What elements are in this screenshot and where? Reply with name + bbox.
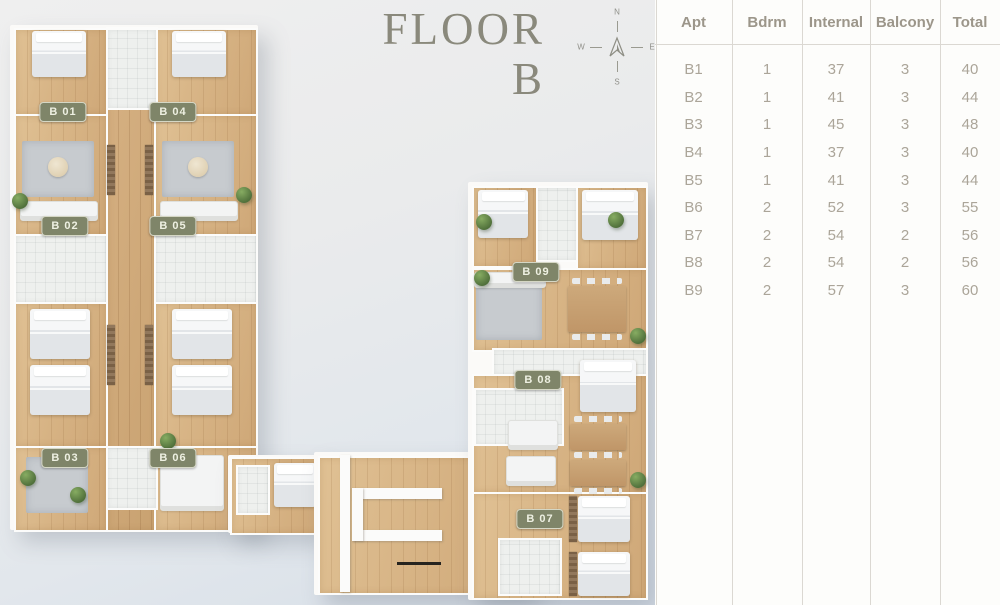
cell-balcony: 2 bbox=[870, 227, 940, 244]
unit-label: B 03 bbox=[41, 448, 88, 468]
unit-label: B 05 bbox=[149, 216, 196, 236]
unit-label: B 06 bbox=[149, 448, 196, 468]
title-floor: FLOOR bbox=[382, 4, 545, 54]
bathroom bbox=[106, 28, 158, 110]
cell-internal: 57 bbox=[802, 282, 870, 299]
cell-balcony: 3 bbox=[870, 282, 940, 299]
cell-apt: B1 bbox=[655, 61, 732, 78]
table-row: B4 1 37 3 40 bbox=[655, 139, 1000, 167]
cell-apt: B9 bbox=[655, 282, 732, 299]
cell-bdrm: 1 bbox=[732, 89, 802, 106]
header-internal: Internal bbox=[802, 14, 870, 31]
table-row: B9 2 57 3 60 bbox=[655, 277, 1000, 305]
plant bbox=[160, 433, 176, 449]
cell-total: 55 bbox=[940, 199, 1000, 216]
unit-label: B 07 bbox=[516, 509, 563, 529]
cell-bdrm: 1 bbox=[732, 172, 802, 189]
kitchen bbox=[498, 538, 562, 596]
bathroom bbox=[236, 465, 270, 515]
cell-bdrm: 2 bbox=[732, 227, 802, 244]
compass-arrow-icon bbox=[607, 36, 627, 58]
unit-label: B 08 bbox=[514, 370, 561, 390]
cell-total: 56 bbox=[940, 227, 1000, 244]
cell-internal: 41 bbox=[802, 89, 870, 106]
bed bbox=[578, 552, 630, 596]
compass-n: N bbox=[614, 8, 620, 17]
unit-label: B 09 bbox=[512, 262, 559, 282]
table-row: B5 1 41 3 44 bbox=[655, 166, 1000, 194]
compass-e: E bbox=[649, 43, 654, 52]
header-bdrm: Bdrm bbox=[732, 14, 802, 31]
wall bbox=[352, 488, 363, 541]
cell-balcony: 3 bbox=[870, 172, 940, 189]
wardrobe bbox=[145, 325, 153, 385]
cell-internal: 37 bbox=[802, 144, 870, 161]
bed bbox=[172, 309, 232, 359]
table-row: B1 1 37 3 40 bbox=[655, 56, 1000, 84]
cell-apt: B2 bbox=[655, 89, 732, 106]
wardrobe bbox=[569, 552, 577, 596]
dining-table bbox=[570, 460, 626, 486]
cell-total: 56 bbox=[940, 254, 1000, 271]
screenshot-root: FLOOR B N W E S bbox=[0, 0, 1000, 605]
plant bbox=[474, 270, 490, 286]
cell-internal: 45 bbox=[802, 116, 870, 133]
building-right-wing bbox=[468, 182, 648, 600]
cell-total: 44 bbox=[940, 89, 1000, 106]
wardrobe bbox=[145, 145, 153, 195]
cell-bdrm: 1 bbox=[732, 144, 802, 161]
cell-total: 40 bbox=[940, 61, 1000, 78]
cell-total: 40 bbox=[940, 144, 1000, 161]
cell-bdrm: 1 bbox=[732, 116, 802, 133]
cell-balcony: 3 bbox=[870, 89, 940, 106]
cell-internal: 54 bbox=[802, 254, 870, 271]
cell-internal: 41 bbox=[802, 172, 870, 189]
cell-internal: 54 bbox=[802, 227, 870, 244]
table-header-row: Apt Bdrm Internal Balcony Total bbox=[655, 0, 1000, 44]
header-divider bbox=[655, 44, 1000, 45]
cell-balcony: 3 bbox=[870, 61, 940, 78]
wardrobe bbox=[107, 145, 115, 195]
cell-internal: 52 bbox=[802, 199, 870, 216]
cell-total: 60 bbox=[940, 282, 1000, 299]
cell-apt: B8 bbox=[655, 254, 732, 271]
plant bbox=[20, 470, 36, 486]
table-row: B3 1 45 3 48 bbox=[655, 111, 1000, 139]
cell-bdrm: 1 bbox=[732, 61, 802, 78]
cell-apt: B3 bbox=[655, 116, 732, 133]
wardrobe bbox=[107, 325, 115, 385]
compass-w: W bbox=[577, 43, 585, 52]
wardrobe bbox=[569, 496, 577, 542]
cell-balcony: 3 bbox=[870, 144, 940, 161]
bed bbox=[30, 365, 90, 415]
compass-s: S bbox=[614, 78, 619, 87]
plant bbox=[630, 472, 646, 488]
plant bbox=[630, 328, 646, 344]
title-letter: B bbox=[382, 54, 545, 104]
bed bbox=[580, 360, 636, 412]
cell-bdrm: 2 bbox=[732, 282, 802, 299]
header-balcony: Balcony bbox=[870, 14, 940, 31]
table-rows: B1 1 37 3 40 B2 1 41 3 44 B3 1 45 3 48 B… bbox=[655, 56, 1000, 304]
cell-balcony: 3 bbox=[870, 116, 940, 133]
table-row: B8 2 54 2 56 bbox=[655, 249, 1000, 277]
compass-dash bbox=[631, 47, 643, 48]
table-row: B2 1 41 3 44 bbox=[655, 84, 1000, 112]
cell-bdrm: 2 bbox=[732, 199, 802, 216]
cell-apt: B5 bbox=[655, 172, 732, 189]
header-total: Total bbox=[940, 14, 1000, 31]
cell-apt: B4 bbox=[655, 144, 732, 161]
compass-icon: N W E S bbox=[578, 4, 656, 90]
cell-bdrm: 2 bbox=[732, 254, 802, 271]
plant bbox=[236, 187, 252, 203]
wall bbox=[340, 455, 350, 592]
compass-dash bbox=[617, 61, 618, 72]
rug bbox=[476, 280, 542, 340]
size-table-panel: Apt Bdrm Internal Balcony Total B1 1 37 … bbox=[655, 0, 1000, 605]
dining-table bbox=[570, 424, 626, 450]
page-title: FLOOR B bbox=[382, 4, 545, 104]
building-bottom-left bbox=[228, 455, 320, 533]
wall bbox=[352, 488, 442, 499]
dining-table bbox=[568, 286, 626, 332]
stair-rail bbox=[397, 562, 441, 565]
plant bbox=[70, 487, 86, 503]
cell-balcony: 3 bbox=[870, 199, 940, 216]
cell-balcony: 2 bbox=[870, 254, 940, 271]
kitchen bbox=[14, 234, 108, 304]
sofa bbox=[506, 456, 556, 486]
bed bbox=[172, 31, 226, 77]
coffee-table bbox=[48, 157, 68, 177]
coffee-table bbox=[188, 157, 208, 177]
header-apt: Apt bbox=[655, 14, 732, 31]
cell-apt: B7 bbox=[655, 227, 732, 244]
cell-apt: B6 bbox=[655, 199, 732, 216]
wall bbox=[352, 530, 442, 541]
bathroom bbox=[536, 186, 578, 262]
floor-plan-panel: FLOOR B N W E S bbox=[0, 0, 655, 605]
bed bbox=[32, 31, 86, 77]
unit-label: B 01 bbox=[39, 102, 86, 122]
compass-dash bbox=[590, 47, 602, 48]
plant bbox=[476, 214, 492, 230]
bed bbox=[274, 463, 316, 507]
sofa bbox=[508, 420, 558, 450]
cell-total: 48 bbox=[940, 116, 1000, 133]
bed bbox=[578, 496, 630, 542]
compass-dash bbox=[617, 21, 618, 32]
unit-label: B 02 bbox=[41, 216, 88, 236]
plant bbox=[12, 193, 28, 209]
bed bbox=[30, 309, 90, 359]
table-row: B6 2 52 3 55 bbox=[655, 194, 1000, 222]
plant bbox=[608, 212, 624, 228]
table-row: B7 2 54 2 56 bbox=[655, 222, 1000, 250]
bed bbox=[172, 365, 232, 415]
cell-total: 44 bbox=[940, 172, 1000, 189]
kitchen bbox=[154, 234, 258, 304]
unit-label: B 04 bbox=[149, 102, 196, 122]
cell-internal: 37 bbox=[802, 61, 870, 78]
